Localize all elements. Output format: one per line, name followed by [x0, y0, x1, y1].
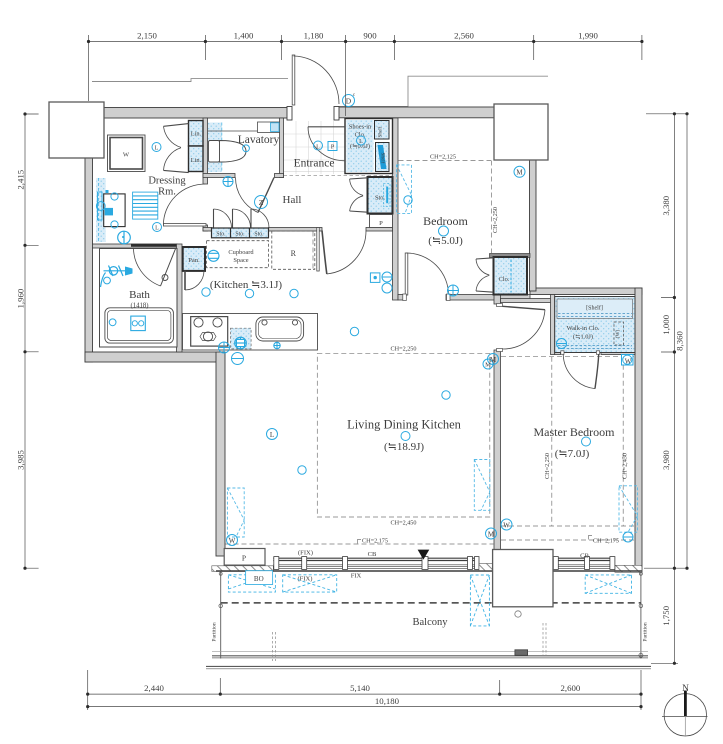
svg-text:CH=2,250: CH=2,250 — [492, 207, 499, 233]
svg-text:CB: CB — [368, 551, 377, 558]
svg-text:W: W — [123, 152, 130, 159]
svg-text:(FIX): (FIX) — [297, 576, 312, 583]
svg-text:(≒18.9J): (≒18.9J) — [384, 441, 424, 453]
svg-text:1,180: 1,180 — [304, 31, 324, 41]
svg-text:2,560: 2,560 — [454, 31, 474, 41]
svg-text:L: L — [155, 226, 159, 232]
svg-text:Shelf: Shelf — [377, 126, 384, 137]
svg-text:M: M — [485, 362, 491, 369]
svg-text:2,150: 2,150 — [137, 31, 157, 41]
svg-text:Lavatory: Lavatory — [238, 134, 280, 146]
svg-text:Cupboard: Cupboard — [228, 249, 254, 256]
svg-text:N: N — [682, 684, 689, 694]
svg-text:FIX: FIX — [351, 573, 362, 580]
svg-text:L: L — [270, 431, 274, 439]
svg-text:(≒5.0J): (≒5.0J) — [428, 235, 463, 247]
svg-text:BO: BO — [254, 575, 264, 583]
svg-text:CH=2,250: CH=2,250 — [390, 346, 416, 353]
svg-text:R: R — [291, 249, 297, 258]
svg-text:1,990: 1,990 — [578, 31, 598, 41]
svg-text:8,360: 8,360 — [675, 331, 685, 351]
svg-text:CH=2,175: CH=2,175 — [362, 538, 388, 545]
svg-text:P: P — [379, 220, 383, 227]
svg-text:Entrance: Entrance — [294, 158, 335, 170]
svg-text:M: M — [488, 531, 495, 539]
svg-text:Sto.: Sto. — [235, 231, 245, 237]
svg-text:Bath: Bath — [129, 289, 150, 301]
svg-text:Living Dining Kitchen: Living Dining Kitchen — [347, 418, 462, 432]
svg-text:W: W — [625, 358, 632, 366]
svg-text:(1418): (1418) — [130, 303, 148, 310]
svg-text:P: P — [331, 144, 335, 151]
svg-text:Partition: Partition — [643, 622, 649, 641]
svg-text:5,140: 5,140 — [350, 683, 370, 693]
svg-text:[Shelf]: [Shelf] — [586, 305, 603, 312]
svg-text:Clo.: Clo. — [499, 276, 510, 283]
svg-text:L: L — [359, 139, 363, 145]
svg-text:W: W — [503, 522, 510, 530]
svg-text:Space: Space — [233, 257, 248, 264]
svg-text:Bedroom: Bedroom — [423, 214, 468, 228]
svg-text:900: 900 — [363, 31, 377, 41]
svg-text:Sto.: Sto. — [254, 231, 264, 237]
svg-text:W: W — [229, 537, 236, 545]
svg-text:1,400: 1,400 — [234, 31, 254, 41]
svg-text:Hall: Hall — [283, 194, 302, 206]
svg-text:M: M — [516, 169, 523, 177]
svg-text:(W): (W) — [614, 329, 621, 338]
svg-text:Master Bedroom: Master Bedroom — [534, 425, 616, 439]
svg-text:3,380: 3,380 — [661, 195, 671, 215]
svg-text:P: P — [242, 554, 246, 563]
svg-text:Pan.: Pan. — [188, 257, 200, 264]
svg-text:CH=2,450: CH=2,450 — [622, 453, 629, 479]
svg-text:Sto.: Sto. — [375, 195, 386, 202]
svg-text:3,980: 3,980 — [661, 450, 671, 470]
svg-text:Lin.: Lin. — [191, 157, 202, 164]
svg-text:(FIX): (FIX) — [298, 550, 313, 557]
svg-text:CH=2,450: CH=2,450 — [390, 520, 416, 527]
svg-text:Walk-in Clo.: Walk-in Clo. — [567, 325, 600, 332]
svg-text:2,600: 2,600 — [561, 683, 581, 693]
svg-text:CH=2,175: CH=2,175 — [593, 538, 619, 545]
svg-text:1,000: 1,000 — [661, 314, 671, 334]
svg-text:L: L — [316, 145, 320, 151]
svg-text:(≒7.0J): (≒7.0J) — [555, 448, 590, 460]
svg-text:(≒1.0J): (≒1.0J) — [573, 334, 593, 341]
svg-text:1,960: 1,960 — [16, 288, 26, 308]
svg-text:(Kitchen ≒3.1J): (Kitchen ≒3.1J) — [210, 279, 282, 291]
svg-text:L: L — [155, 146, 159, 152]
svg-text:3,985: 3,985 — [16, 450, 26, 470]
svg-text:Sto.: Sto. — [216, 231, 226, 237]
svg-text:10,180: 10,180 — [375, 696, 400, 706]
svg-text:CH=2,125: CH=2,125 — [430, 154, 456, 161]
svg-text:2,440: 2,440 — [144, 683, 164, 693]
svg-text:1,750: 1,750 — [661, 605, 671, 625]
svg-text:CH=2,250: CH=2,250 — [544, 453, 551, 479]
svg-text:D: D — [346, 97, 352, 106]
svg-text:2,415: 2,415 — [16, 169, 26, 189]
svg-text:Shoes-in: Shoes-in — [349, 124, 372, 131]
svg-text:CB: CB — [580, 553, 589, 560]
svg-text:Lin.: Lin. — [191, 131, 202, 138]
svg-text:Partition: Partition — [212, 622, 218, 641]
svg-text:M: M — [490, 356, 497, 364]
svg-text:Dressing: Dressing — [148, 176, 186, 187]
svg-text:Balcony: Balcony — [413, 617, 449, 628]
svg-text:Rm.: Rm. — [158, 187, 176, 198]
svg-text:Z: Z — [259, 198, 264, 207]
svg-text:Shelf: Shelf — [380, 153, 387, 164]
